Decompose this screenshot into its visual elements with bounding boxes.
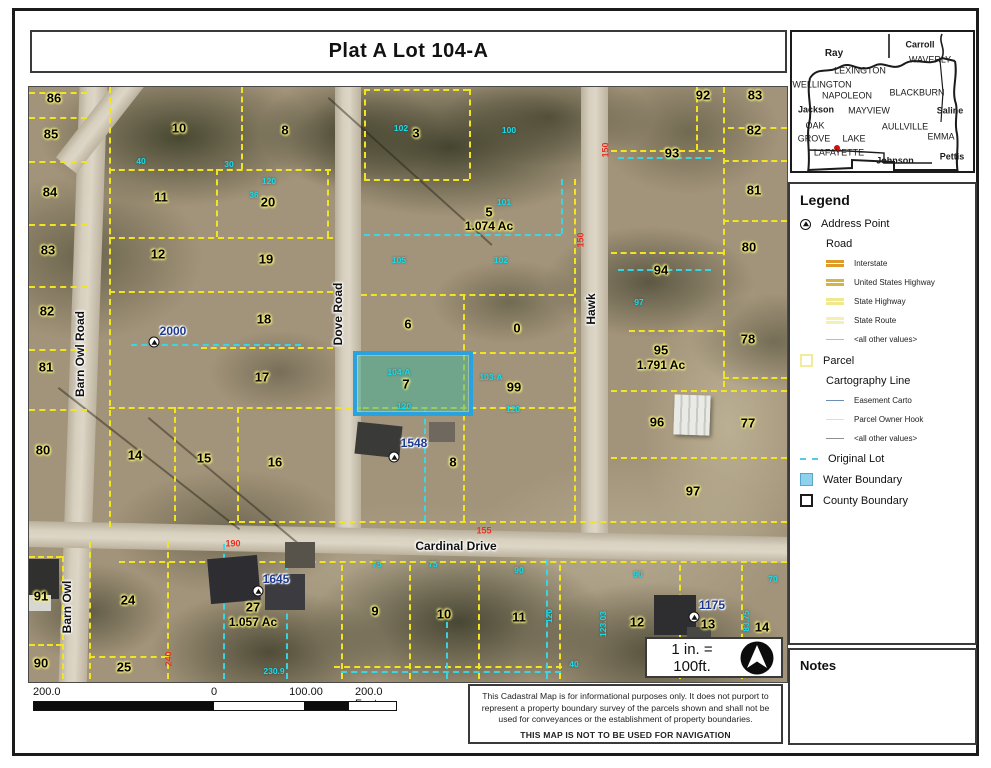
inset-place-label: EMMA <box>928 133 955 142</box>
parcel-number-label: 3 <box>412 127 419 140</box>
inset-place-label: LAKE <box>842 135 865 144</box>
parcel-number-label: 97 <box>686 485 700 498</box>
dimension-label: 75 <box>428 560 437 569</box>
parcel-number-label: 5 <box>485 206 492 219</box>
cadastral-map: 8685848382818091901081120121918171415163… <box>28 86 788 683</box>
dimension-label: 104-A <box>387 368 410 377</box>
legend-parcel-label: Parcel <box>823 355 854 367</box>
legend-road-item-icon <box>826 298 844 305</box>
legend-carto-item-icon <box>826 419 844 421</box>
parcel-number-label: 20 <box>261 196 275 209</box>
inset-place-label: LAFAYETTE <box>814 149 864 158</box>
parcel-number-label: 82 <box>40 305 54 318</box>
dimension-label: 75 <box>372 560 381 569</box>
inset-place-label: Jackson <box>798 106 834 115</box>
dimension-label: 101 <box>497 198 511 207</box>
parcel-number-label: 27 <box>246 601 260 614</box>
parcel-number-label: 14 <box>128 449 142 462</box>
dimension-label: 36 <box>249 191 258 200</box>
legend-title: Legend <box>800 192 975 208</box>
dimension-label-red: 150 <box>602 142 611 157</box>
legend-carto-item-label: Parcel Owner Hook <box>854 415 923 424</box>
plat-map-page: Plat A Lot 104-A <box>0 0 991 768</box>
parcel-number-label: 91 <box>34 590 48 603</box>
dimension-label: 123.03 <box>599 611 608 637</box>
notes-title: Notes <box>800 658 965 673</box>
inset-place-label: MAYVIEW <box>848 107 890 116</box>
parcel-number-label: 8 <box>449 456 456 469</box>
legend-carto-header: Cartography Line <box>826 375 975 387</box>
water-boundary-swatch-icon <box>800 473 813 486</box>
parcel-number-label: 78 <box>741 333 755 346</box>
dimension-label: 120 <box>506 405 520 414</box>
inset-place-label: Ray <box>825 49 843 59</box>
parcel-number-label: 92 <box>696 89 710 102</box>
parcel-number-label: 81 <box>39 361 53 374</box>
address-point-icon <box>389 452 400 463</box>
dimension-label: 102 <box>394 124 408 133</box>
cardinal-drive-surface <box>28 521 788 563</box>
inset-place-label: WAVERLY <box>909 56 951 65</box>
county-boundary-swatch-icon <box>800 494 813 507</box>
dimension-label: 120 <box>262 177 276 186</box>
parcel-number-label: 25 <box>117 661 131 674</box>
road-name-label: Dove Road <box>332 283 344 346</box>
parcel-number-label: 8 <box>281 124 288 137</box>
dimension-label: 120 <box>545 609 554 623</box>
dimension-label-red: 240 <box>165 651 174 666</box>
parcel-number-label: 1.791 Ac <box>637 359 685 371</box>
dimension-label: 102 <box>494 256 508 265</box>
dimension-label-red: 155 <box>476 527 491 536</box>
road-name-label: Cardinal Drive <box>415 540 496 552</box>
parcel-number-label: 16 <box>268 456 282 469</box>
parcel-number-label: 18 <box>257 313 271 326</box>
parcel-number-label: 1.057 Ac <box>229 616 277 628</box>
inset-locator-map: RayCarrollWAVERLYLEXINGTONWELLINGTONNAPO… <box>790 30 975 173</box>
parcel-number-label: 0 <box>513 322 520 335</box>
original-lot-line-icon <box>800 458 818 460</box>
notes-panel: Notes <box>788 648 977 745</box>
parcel-number-label: 83 <box>41 244 55 257</box>
dimension-label: 40 <box>569 660 578 669</box>
parcel-number-label: 90 <box>34 657 48 670</box>
dimension-label: 105 <box>392 256 406 265</box>
parcel-number-label: 80 <box>36 444 50 457</box>
scale-note: 1 in. = 100ft. <box>653 641 731 675</box>
parcel-number-label: 81 <box>747 184 761 197</box>
legend-road-item-label: State Highway <box>854 297 906 306</box>
inset-place-label: Johnson <box>876 157 914 166</box>
parcel-number-label: 17 <box>255 371 269 384</box>
disclaimer-line3: used for conveyances or the establishmen… <box>478 714 773 726</box>
legend-address-point-label: Address Point <box>821 218 889 230</box>
inset-place-label: OAK <box>805 122 824 131</box>
dimension-label: 30 <box>224 160 233 169</box>
parcel-number-label: 19 <box>259 253 273 266</box>
legend-road-item-icon <box>826 339 844 341</box>
disclaimer-line1: This Cadastral Map is for informational … <box>478 691 773 703</box>
legend-road-item-icon <box>826 317 844 324</box>
disclaimer-line2: represent a property boundary survey of … <box>478 703 773 715</box>
parcel-number-label: 9 <box>371 605 378 618</box>
parcel-number-label: 12 <box>151 248 165 261</box>
scale-note-box: 1 in. = 100ft. <box>645 637 783 678</box>
dimension-label: 70 <box>768 575 777 584</box>
legend-county-boundary-label: County Boundary <box>823 495 908 507</box>
address-number-label: 1645 <box>263 573 290 585</box>
disclaimer-line4: THIS MAP IS NOT TO BE USED FOR NAVIGATIO… <box>478 730 773 742</box>
legend-carto-item-label: Easement Carto <box>854 396 912 405</box>
parcel-number-label: 94 <box>654 264 668 277</box>
dimension-label: 83.75 <box>742 610 751 631</box>
scalebar-mid-label: 100.00 <box>289 686 323 698</box>
legend-road-item-icon <box>826 260 844 267</box>
legend-road-item-label: Interstate <box>854 259 887 268</box>
subject-parcel-highlight <box>353 351 473 416</box>
address-number-label: 1548 <box>401 437 428 449</box>
title-box: Plat A Lot 104-A <box>30 30 787 73</box>
parcel-number-label: 15 <box>197 452 211 465</box>
inset-place-label: WELLINGTON <box>792 81 851 90</box>
legend-road-item-label: United States Highway <box>854 278 935 287</box>
parcel-number-label: 84 <box>43 186 57 199</box>
scalebar-left-label: 200.0 <box>33 686 61 698</box>
scalebar-zero-label: 0 <box>211 686 217 698</box>
dimension-label-red: 150 <box>577 232 586 247</box>
road-name-label: Barn Owl Road <box>74 311 86 397</box>
parcel-number-label: 24 <box>121 594 135 607</box>
inset-place-label: BLACKBURN <box>889 89 944 98</box>
scale-bar: 200.0 0 100.00 200.0 Feet <box>33 686 405 712</box>
parcel-number-label: 93 <box>665 147 679 160</box>
legend-road-item-label: State Route <box>854 316 896 325</box>
parcel-swatch-icon <box>800 354 813 367</box>
dimension-label: 100 <box>502 126 516 135</box>
parcel-number-label: 12 <box>630 616 644 629</box>
parcel-number-label: 82 <box>747 124 761 137</box>
parcel-number-label: 86 <box>47 92 61 105</box>
address-number-label: 2000 <box>160 325 187 337</box>
parcel-number-label: 1.074 Ac <box>465 220 513 232</box>
inset-place-label: Pettis <box>940 153 965 162</box>
legend-panel: Legend Address Point Road InterstateUnit… <box>788 182 977 645</box>
inset-place-label: LEXINGTON <box>834 67 886 76</box>
legend-road-item-label: <all other values> <box>854 335 917 344</box>
legend-water-boundary-label: Water Boundary <box>823 474 902 486</box>
parcel-number-label: 95 <box>654 344 668 357</box>
disclaimer-box: This Cadastral Map is for informational … <box>468 684 783 744</box>
parcel-number-label: 85 <box>44 128 58 141</box>
dimension-label: 230.9 <box>263 667 284 676</box>
parcel-number-label: 10 <box>172 122 186 135</box>
dimension-label: 90 <box>633 570 642 579</box>
inset-place-label: Carroll <box>905 41 934 50</box>
address-point-icon <box>253 586 264 597</box>
legend-carto-item-label: <all other values> <box>854 434 917 443</box>
page-title: Plat A Lot 104-A <box>329 40 489 63</box>
parcel-number-label: 11 <box>512 611 526 624</box>
road-name-label: Hawk <box>585 293 597 324</box>
inset-place-label: AULLVILLE <box>882 123 928 132</box>
inset-place-label: NAPOLEON <box>822 92 872 101</box>
parcel-number-label: 83 <box>748 89 762 102</box>
parcel-number-label: 96 <box>650 416 664 429</box>
parcel-number-label: 99 <box>507 381 521 394</box>
north-arrow-icon <box>739 640 775 676</box>
legend-carto-item-icon <box>826 400 844 402</box>
dimension-label: 97 <box>634 298 643 307</box>
address-point-icon <box>149 337 160 348</box>
parcel-number-label: 7 <box>402 378 409 391</box>
dimension-label-red: 190 <box>225 540 240 549</box>
address-point-icon <box>689 612 700 623</box>
address-point-icon <box>800 219 811 230</box>
legend-original-lot-label: Original Lot <box>828 453 884 465</box>
road-name-label: Barn Owl <box>61 581 73 634</box>
parcel-number-label: 14 <box>755 621 769 634</box>
address-number-label: 1175 <box>699 599 725 611</box>
legend-road-header: Road <box>826 238 975 250</box>
legend-road-item-icon <box>826 279 844 286</box>
inset-place-label: GROVE <box>798 135 831 144</box>
dimension-label: 90 <box>514 566 523 575</box>
parcel-number-label: 77 <box>741 417 755 430</box>
dimension-label: 103-A <box>479 373 502 382</box>
parcel-number-label: 80 <box>742 241 756 254</box>
inset-place-label: Saline <box>937 107 964 116</box>
parcel-number-label: 11 <box>154 191 168 204</box>
parcel-number-label: 13 <box>701 618 715 631</box>
legend-carto-item-icon <box>826 438 844 440</box>
dimension-label: 40 <box>136 157 145 166</box>
dimension-label: 120 <box>397 402 411 411</box>
parcel-number-label: 6 <box>404 318 411 331</box>
parcel-number-label: 10 <box>437 608 451 621</box>
